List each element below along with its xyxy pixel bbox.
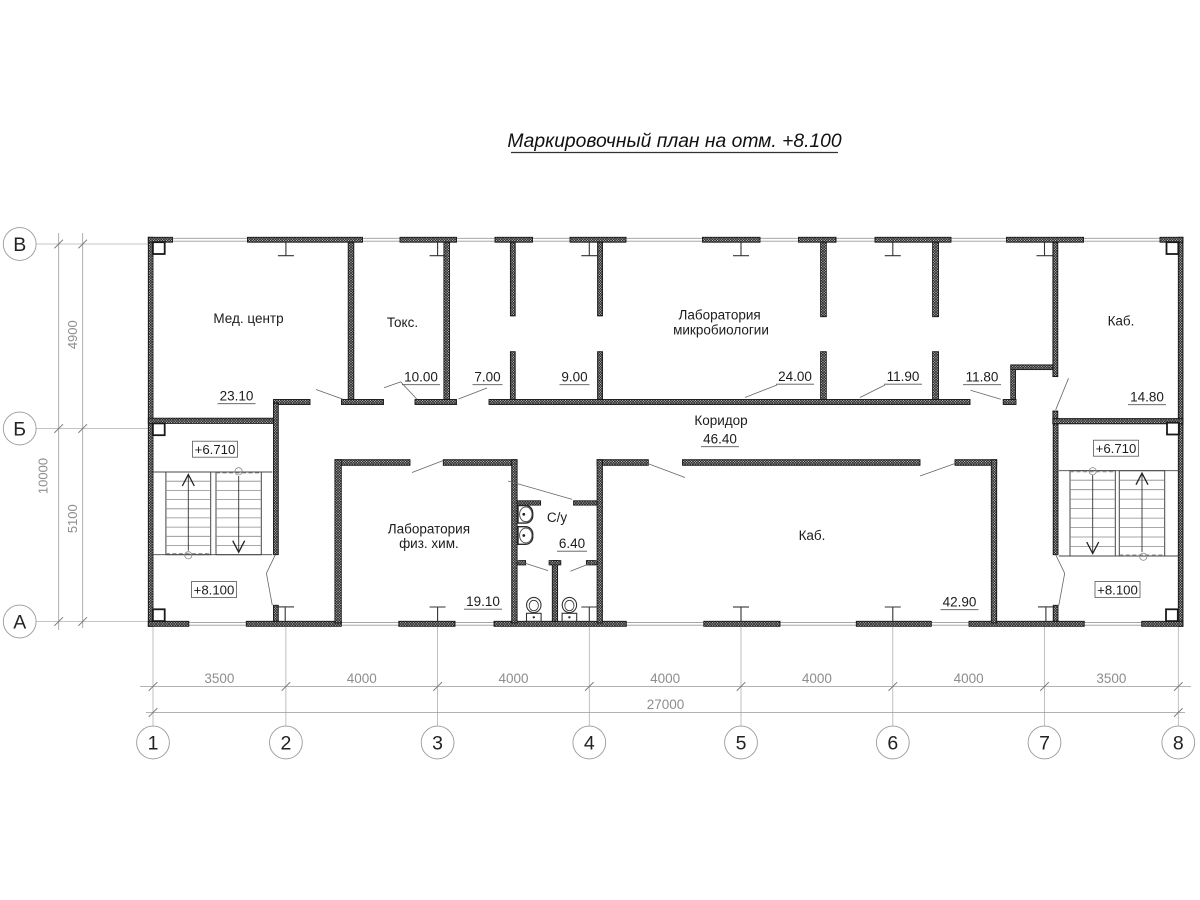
svg-text:7: 7 xyxy=(1039,733,1050,755)
svg-text:С/у: С/у xyxy=(547,510,568,525)
svg-text:Лаборатория: Лаборатория xyxy=(678,308,760,323)
svg-text:+6.710: +6.710 xyxy=(1096,441,1137,456)
svg-text:9.00: 9.00 xyxy=(561,369,587,384)
svg-text:Коридор: Коридор xyxy=(694,413,747,428)
svg-text:3: 3 xyxy=(432,733,443,755)
svg-text:Каб.: Каб. xyxy=(1108,313,1135,328)
svg-text:10000: 10000 xyxy=(36,458,51,494)
svg-text:6.40: 6.40 xyxy=(559,536,585,551)
svg-text:24.00: 24.00 xyxy=(778,369,812,384)
svg-text:4000: 4000 xyxy=(954,671,984,686)
svg-text:11.90: 11.90 xyxy=(887,369,920,384)
svg-text:4000: 4000 xyxy=(802,671,832,686)
svg-text:19.10: 19.10 xyxy=(466,594,500,609)
svg-text:+6.710: +6.710 xyxy=(195,442,236,457)
svg-text:Маркировочный план на отм. +8.: Маркировочный план на отм. +8.100 xyxy=(507,131,842,152)
svg-text:Токс.: Токс. xyxy=(387,315,418,330)
svg-text:42.90: 42.90 xyxy=(943,594,977,609)
svg-text:4000: 4000 xyxy=(498,671,528,686)
svg-text:физ. хим.: физ. хим. xyxy=(399,536,459,551)
svg-text:5: 5 xyxy=(736,733,747,755)
svg-text:8: 8 xyxy=(1173,733,1184,755)
svg-text:10.00: 10.00 xyxy=(404,369,438,384)
svg-text:11.80: 11.80 xyxy=(966,369,999,384)
svg-text:6: 6 xyxy=(887,733,898,755)
svg-text:4: 4 xyxy=(584,733,595,755)
svg-text:В: В xyxy=(13,234,26,256)
svg-text:Мед. центр: Мед. центр xyxy=(213,311,283,326)
svg-text:27000: 27000 xyxy=(647,697,685,712)
svg-text:А: А xyxy=(13,612,26,634)
svg-text:5100: 5100 xyxy=(65,504,80,533)
svg-text:14.80: 14.80 xyxy=(1130,389,1164,404)
svg-text:+8.100: +8.100 xyxy=(194,582,235,597)
svg-text:4000: 4000 xyxy=(650,671,680,686)
svg-text:Б: Б xyxy=(13,419,26,441)
svg-text:7.00: 7.00 xyxy=(474,369,500,384)
svg-text:4900: 4900 xyxy=(65,320,80,349)
svg-text:+8.100: +8.100 xyxy=(1097,582,1138,597)
svg-text:1: 1 xyxy=(148,733,159,755)
svg-text:23.10: 23.10 xyxy=(220,388,254,403)
svg-text:4000: 4000 xyxy=(347,671,377,686)
svg-text:3500: 3500 xyxy=(1096,671,1126,686)
svg-text:2: 2 xyxy=(280,733,291,755)
svg-text:3500: 3500 xyxy=(204,671,234,686)
svg-text:Лаборатория: Лаборатория xyxy=(388,521,470,536)
svg-text:46.40: 46.40 xyxy=(703,431,737,446)
svg-text:микробиологии: микробиологии xyxy=(673,322,769,337)
svg-text:Каб.: Каб. xyxy=(799,528,826,543)
